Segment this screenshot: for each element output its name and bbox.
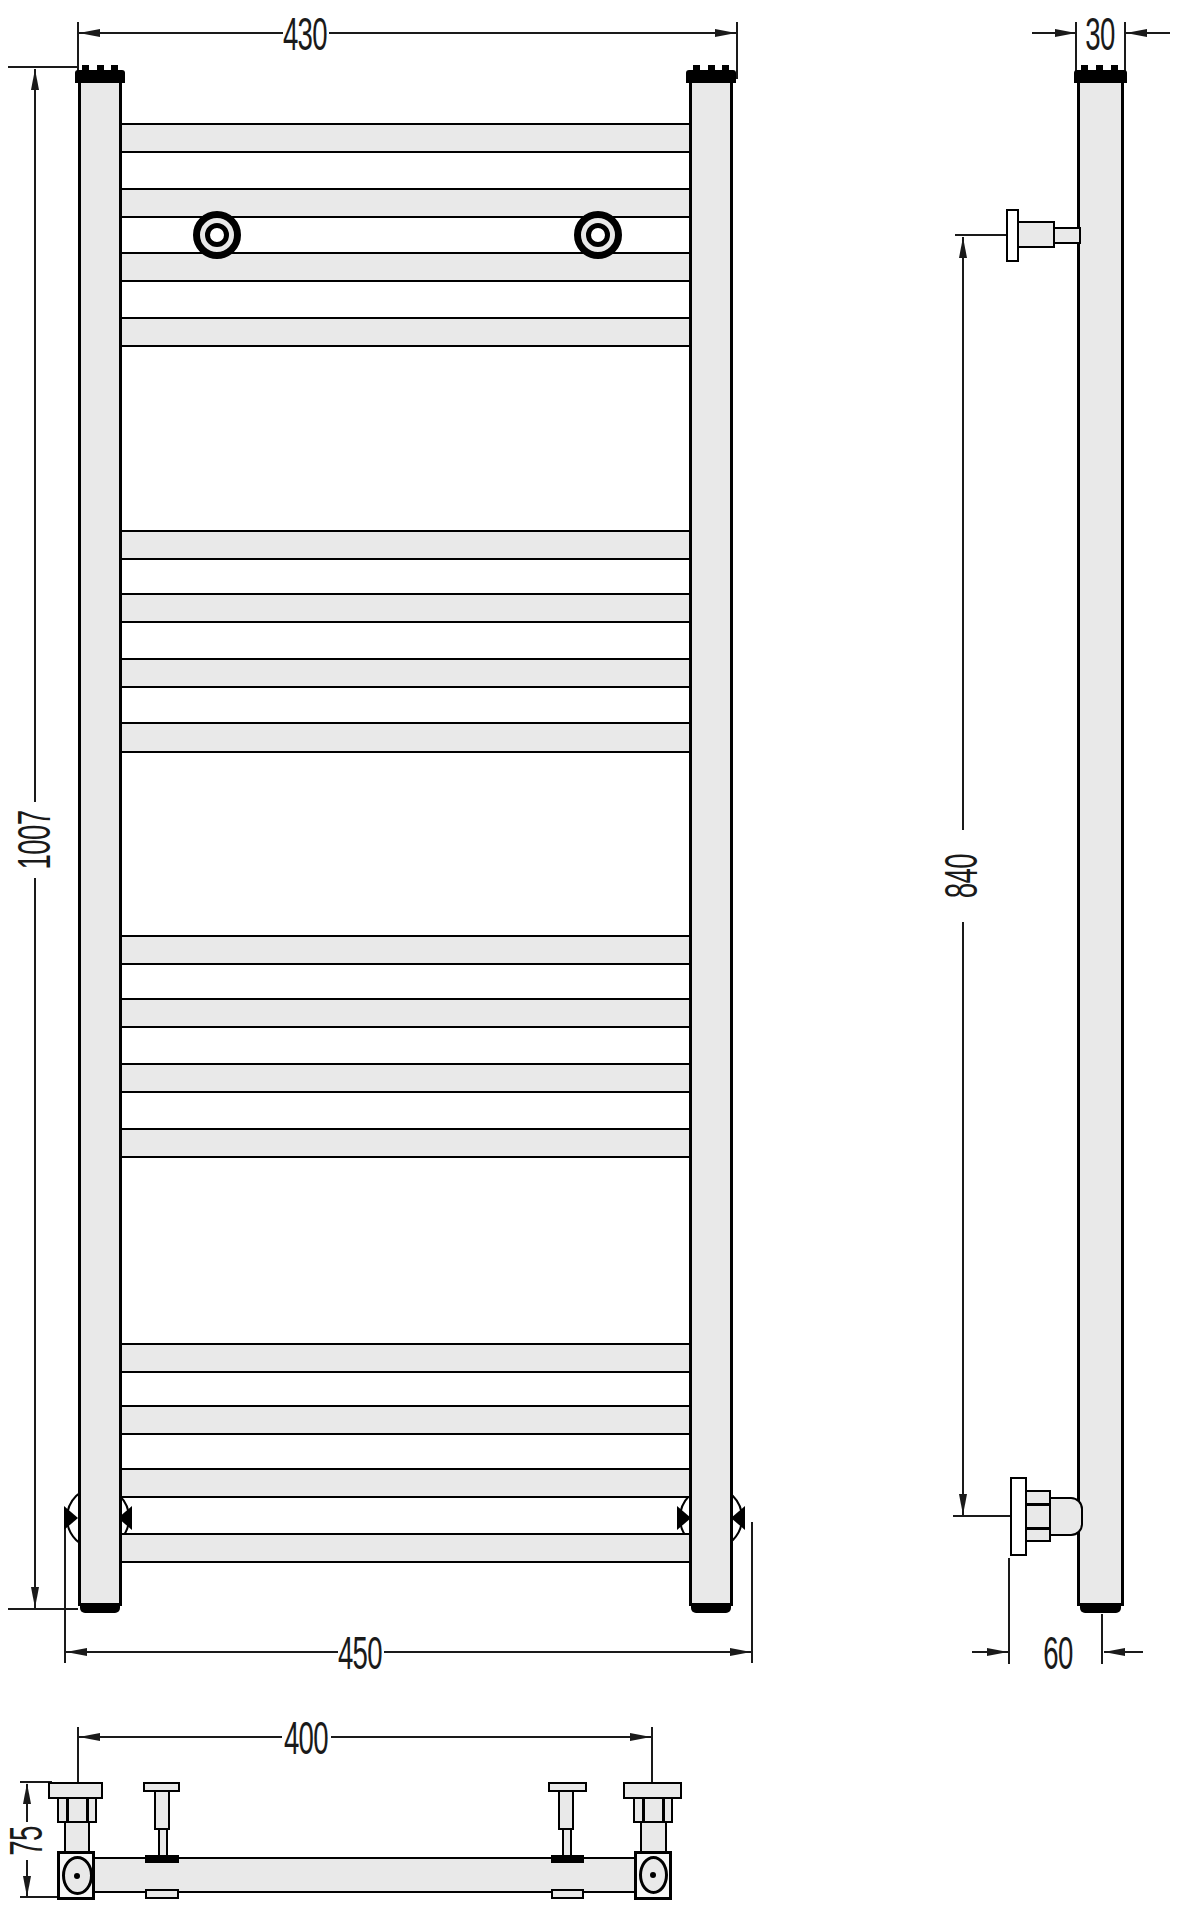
- valve-flange: [623, 1782, 682, 1799]
- cap-tick: [693, 65, 700, 71]
- mounting-rosette-left-center: [205, 223, 229, 247]
- bracket-pad: [551, 1855, 584, 1863]
- arrowhead-up-icon: [31, 69, 39, 90]
- rung: [117, 1533, 693, 1563]
- mounting-rosette-right-center: [586, 223, 610, 247]
- rung: [117, 722, 693, 753]
- arrowhead-up-icon: [23, 1783, 31, 1804]
- dimension-line: [79, 32, 283, 34]
- dimension-line: [79, 1736, 282, 1738]
- technical-drawing-canvas: 430 1007 450: [0, 0, 1184, 1920]
- arrowhead-down-icon: [23, 1876, 31, 1897]
- dimension-line: [962, 922, 964, 1515]
- post-cap-top-left: [75, 70, 125, 83]
- bracket-stem: [154, 1790, 170, 1830]
- extension-line: [1101, 1614, 1103, 1664]
- cap-tick: [708, 65, 715, 71]
- side-tube: [1077, 75, 1124, 1606]
- arrowhead-left-icon: [66, 1648, 87, 1656]
- valve-flange: [48, 1782, 103, 1799]
- bracket-facet-line: [1027, 1503, 1049, 1506]
- dimension-line: [384, 1651, 751, 1653]
- cap-tick: [722, 65, 729, 71]
- extension-line: [8, 1608, 78, 1610]
- valve-hex-nut: [57, 1797, 97, 1823]
- extension-line: [751, 1522, 753, 1663]
- arrowhead-left-icon: [1126, 29, 1147, 37]
- extension-line: [64, 1522, 66, 1663]
- bracket-stem: [558, 1790, 574, 1830]
- cap-tick: [1096, 65, 1103, 71]
- post-left: [78, 75, 122, 1606]
- arrowhead-down-icon: [959, 1494, 967, 1515]
- arrowhead-left-icon: [79, 1733, 100, 1741]
- bracket-pin: [1051, 227, 1081, 244]
- hex-facet-line: [642, 1799, 645, 1821]
- dimension-label-1007: 1007: [7, 810, 61, 869]
- arrowhead-right-icon: [630, 1733, 651, 1741]
- valve-hex-nut: [633, 1797, 673, 1823]
- arrowhead-right-icon: [715, 29, 736, 37]
- dimension-label-400: 400: [284, 1711, 328, 1765]
- rung: [117, 998, 693, 1028]
- rung: [117, 593, 693, 623]
- bracket-pad: [145, 1855, 179, 1863]
- bracket-facet-line: [1027, 1527, 1049, 1530]
- dimension-line: [34, 69, 36, 802]
- dimension-line: [329, 32, 736, 34]
- rung: [117, 530, 693, 560]
- dimension-label-30: 30: [1085, 7, 1115, 61]
- cap-tick: [111, 65, 118, 71]
- arrowhead-up-icon: [959, 237, 967, 258]
- bracket-pad-under: [145, 1889, 179, 1899]
- tube-end-dot-icon: [74, 1873, 80, 1879]
- bracket-cone-dart-icon: [64, 1506, 78, 1530]
- post-foot-right: [691, 1603, 731, 1613]
- dimension-line: [331, 1736, 651, 1738]
- bracket-body: [1017, 221, 1055, 248]
- dimension-label-75: 75: [0, 1826, 53, 1856]
- arrowhead-down-icon: [31, 1587, 39, 1608]
- reference-line: [953, 1515, 1011, 1517]
- post-right: [689, 75, 733, 1606]
- arrowhead-right-icon: [987, 1648, 1008, 1656]
- rung: [117, 317, 693, 347]
- extension-line: [8, 66, 78, 68]
- arrowhead-right-icon: [730, 1648, 751, 1656]
- bracket-wall-plate: [1006, 209, 1019, 262]
- dimension-label-840: 840: [934, 854, 988, 898]
- rung: [117, 1128, 693, 1158]
- cap-tick: [97, 65, 104, 71]
- cap-tick: [82, 65, 89, 71]
- valve-cylinder: [640, 1821, 667, 1855]
- reference-line: [955, 234, 1009, 236]
- side-cap-bottom: [1080, 1603, 1121, 1613]
- bracket-cone-dart-icon: [731, 1506, 745, 1530]
- rung: [117, 123, 693, 153]
- tube-end-dot-icon: [650, 1872, 656, 1878]
- rung: [117, 935, 693, 965]
- valve-cylinder: [64, 1821, 90, 1855]
- post-cap-top-right: [686, 70, 736, 83]
- bracket-pad-under: [551, 1889, 584, 1899]
- dimension-label-60: 60: [1043, 1626, 1073, 1680]
- cap-tick: [1081, 65, 1088, 71]
- cap-tick: [1111, 65, 1118, 71]
- hex-facet-line: [662, 1799, 665, 1821]
- arrowhead-left-icon: [79, 29, 100, 37]
- arrowhead-right-icon: [1055, 29, 1076, 37]
- dimension-line: [34, 878, 36, 1608]
- arrowhead-left-icon: [1104, 1648, 1125, 1656]
- rung: [117, 1468, 693, 1498]
- rung: [117, 1063, 693, 1093]
- rung: [117, 1343, 693, 1373]
- side-cap-top: [1074, 70, 1127, 83]
- bracket-wall-plate: [1010, 1477, 1027, 1556]
- extension-line: [651, 1727, 653, 1782]
- bracket-pin: [1049, 1497, 1083, 1536]
- bracket-body: [1025, 1490, 1051, 1542]
- dimension-label-450: 450: [338, 1626, 382, 1680]
- hex-facet-line: [86, 1799, 89, 1821]
- rung: [117, 658, 693, 688]
- post-foot-left: [80, 1603, 120, 1613]
- dimension-label-430: 430: [283, 7, 327, 61]
- extension-line: [1008, 1558, 1010, 1664]
- hex-facet-line: [66, 1799, 69, 1821]
- dimension-line: [962, 237, 964, 830]
- extension-line: [736, 22, 738, 79]
- dimension-line: [66, 1651, 338, 1653]
- rung: [117, 1405, 693, 1435]
